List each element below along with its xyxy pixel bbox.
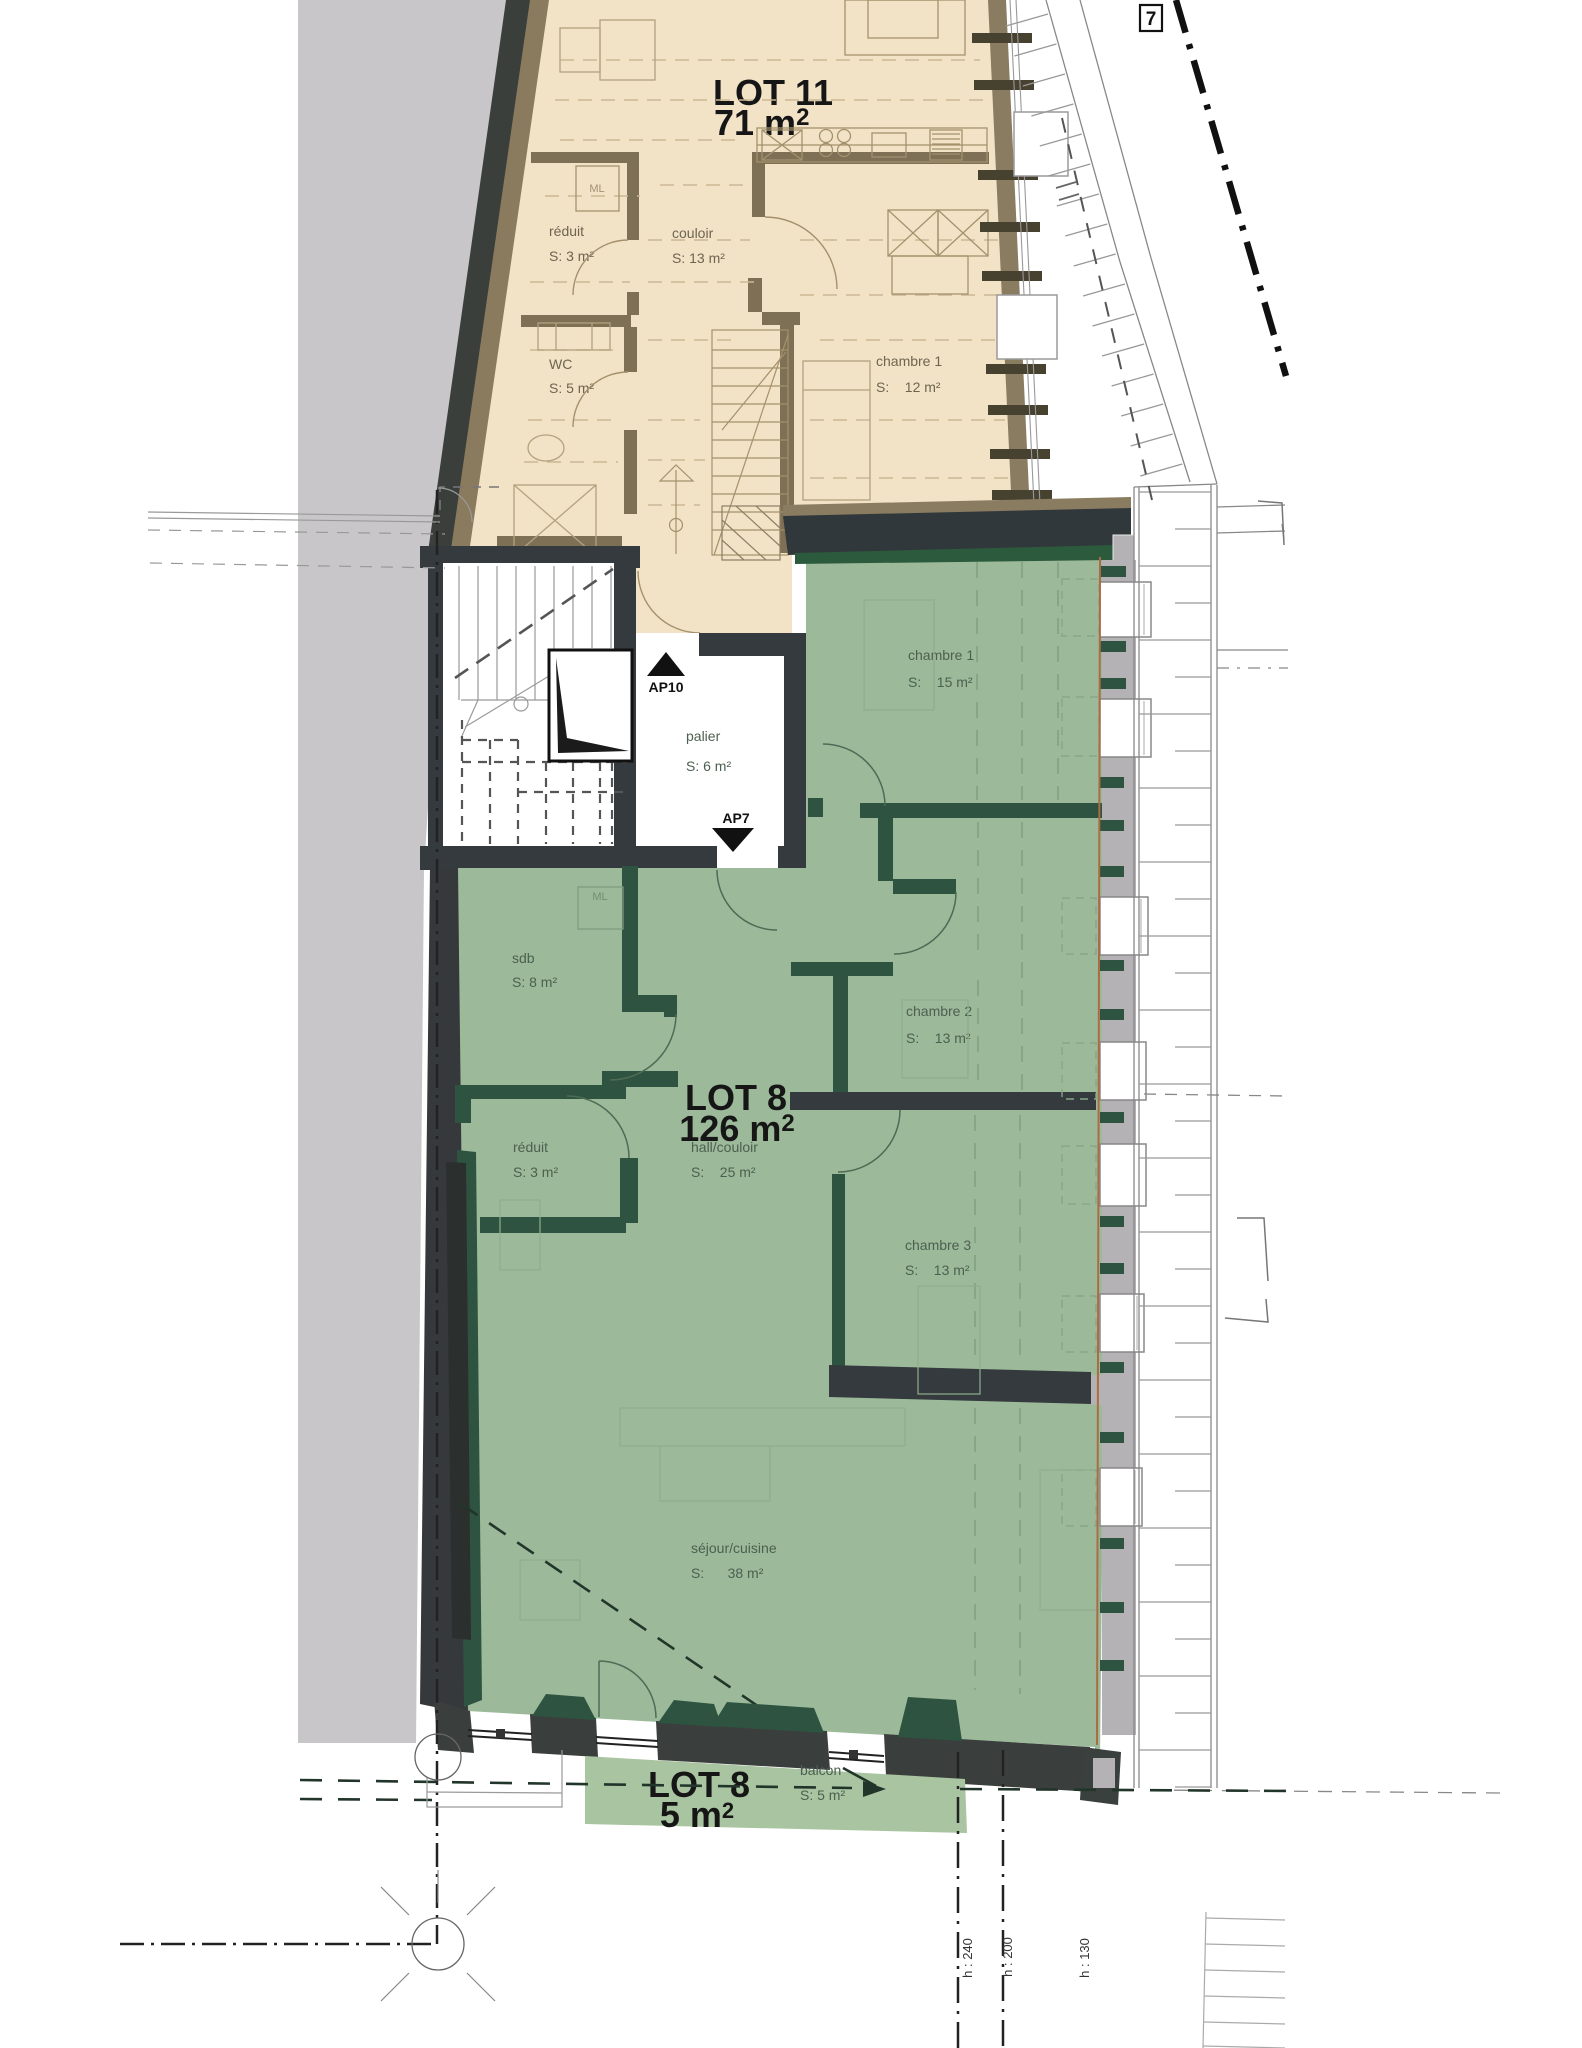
svg-text:chambre 1: chambre 1: [876, 353, 942, 369]
svg-text:balcon: balcon: [800, 1762, 841, 1778]
svg-text:S: 15 m²: S: 15 m²: [908, 674, 973, 690]
svg-text:S: 3 m²: S: 3 m²: [513, 1164, 558, 1180]
svg-text:S: 38 m²: S: 38 m²: [691, 1565, 764, 1581]
svg-text:h : 130: h : 130: [1077, 1938, 1092, 1978]
svg-text:S: 5 m²: S: 5 m²: [800, 1787, 845, 1803]
svg-text:7: 7: [1146, 9, 1157, 30]
svg-text:réduit: réduit: [549, 223, 584, 239]
svg-text:S: 5 m²: S: 5 m²: [549, 380, 594, 396]
svg-text:S: 6 m²: S: 6 m²: [686, 758, 731, 774]
svg-text:AP10: AP10: [648, 679, 683, 695]
svg-text:S: 25 m²: S: 25 m²: [691, 1164, 756, 1180]
svg-text:S: 13 m²: S: 13 m²: [905, 1262, 970, 1278]
svg-text:couloir: couloir: [672, 225, 714, 241]
svg-text:réduit: réduit: [513, 1139, 548, 1155]
svg-text:S: 13 m²: S: 13 m²: [672, 250, 725, 266]
svg-text:126 m2: 126 m2: [679, 1108, 794, 1149]
svg-text:séjour/cuisine: séjour/cuisine: [691, 1540, 777, 1556]
svg-text:AP7: AP7: [722, 810, 749, 826]
svg-text:chambre 1: chambre 1: [908, 647, 974, 663]
svg-text:ML: ML: [592, 891, 607, 903]
svg-text:sdb: sdb: [512, 950, 535, 966]
svg-text:chambre 2: chambre 2: [906, 1003, 972, 1019]
svg-text:chambre 3: chambre 3: [905, 1237, 971, 1253]
svg-text:S: 8 m²: S: 8 m²: [512, 974, 557, 990]
svg-text:h : 200: h : 200: [1000, 1937, 1015, 1977]
svg-text:ML: ML: [589, 183, 604, 195]
svg-text:S: 13 m²: S: 13 m²: [906, 1030, 971, 1046]
svg-text:h : 240: h : 240: [960, 1938, 975, 1978]
svg-text:S: 3 m²: S: 3 m²: [549, 248, 594, 264]
svg-text:palier: palier: [686, 728, 721, 744]
svg-text:S: 12 m²: S: 12 m²: [876, 379, 941, 395]
svg-text:WC: WC: [549, 356, 572, 372]
